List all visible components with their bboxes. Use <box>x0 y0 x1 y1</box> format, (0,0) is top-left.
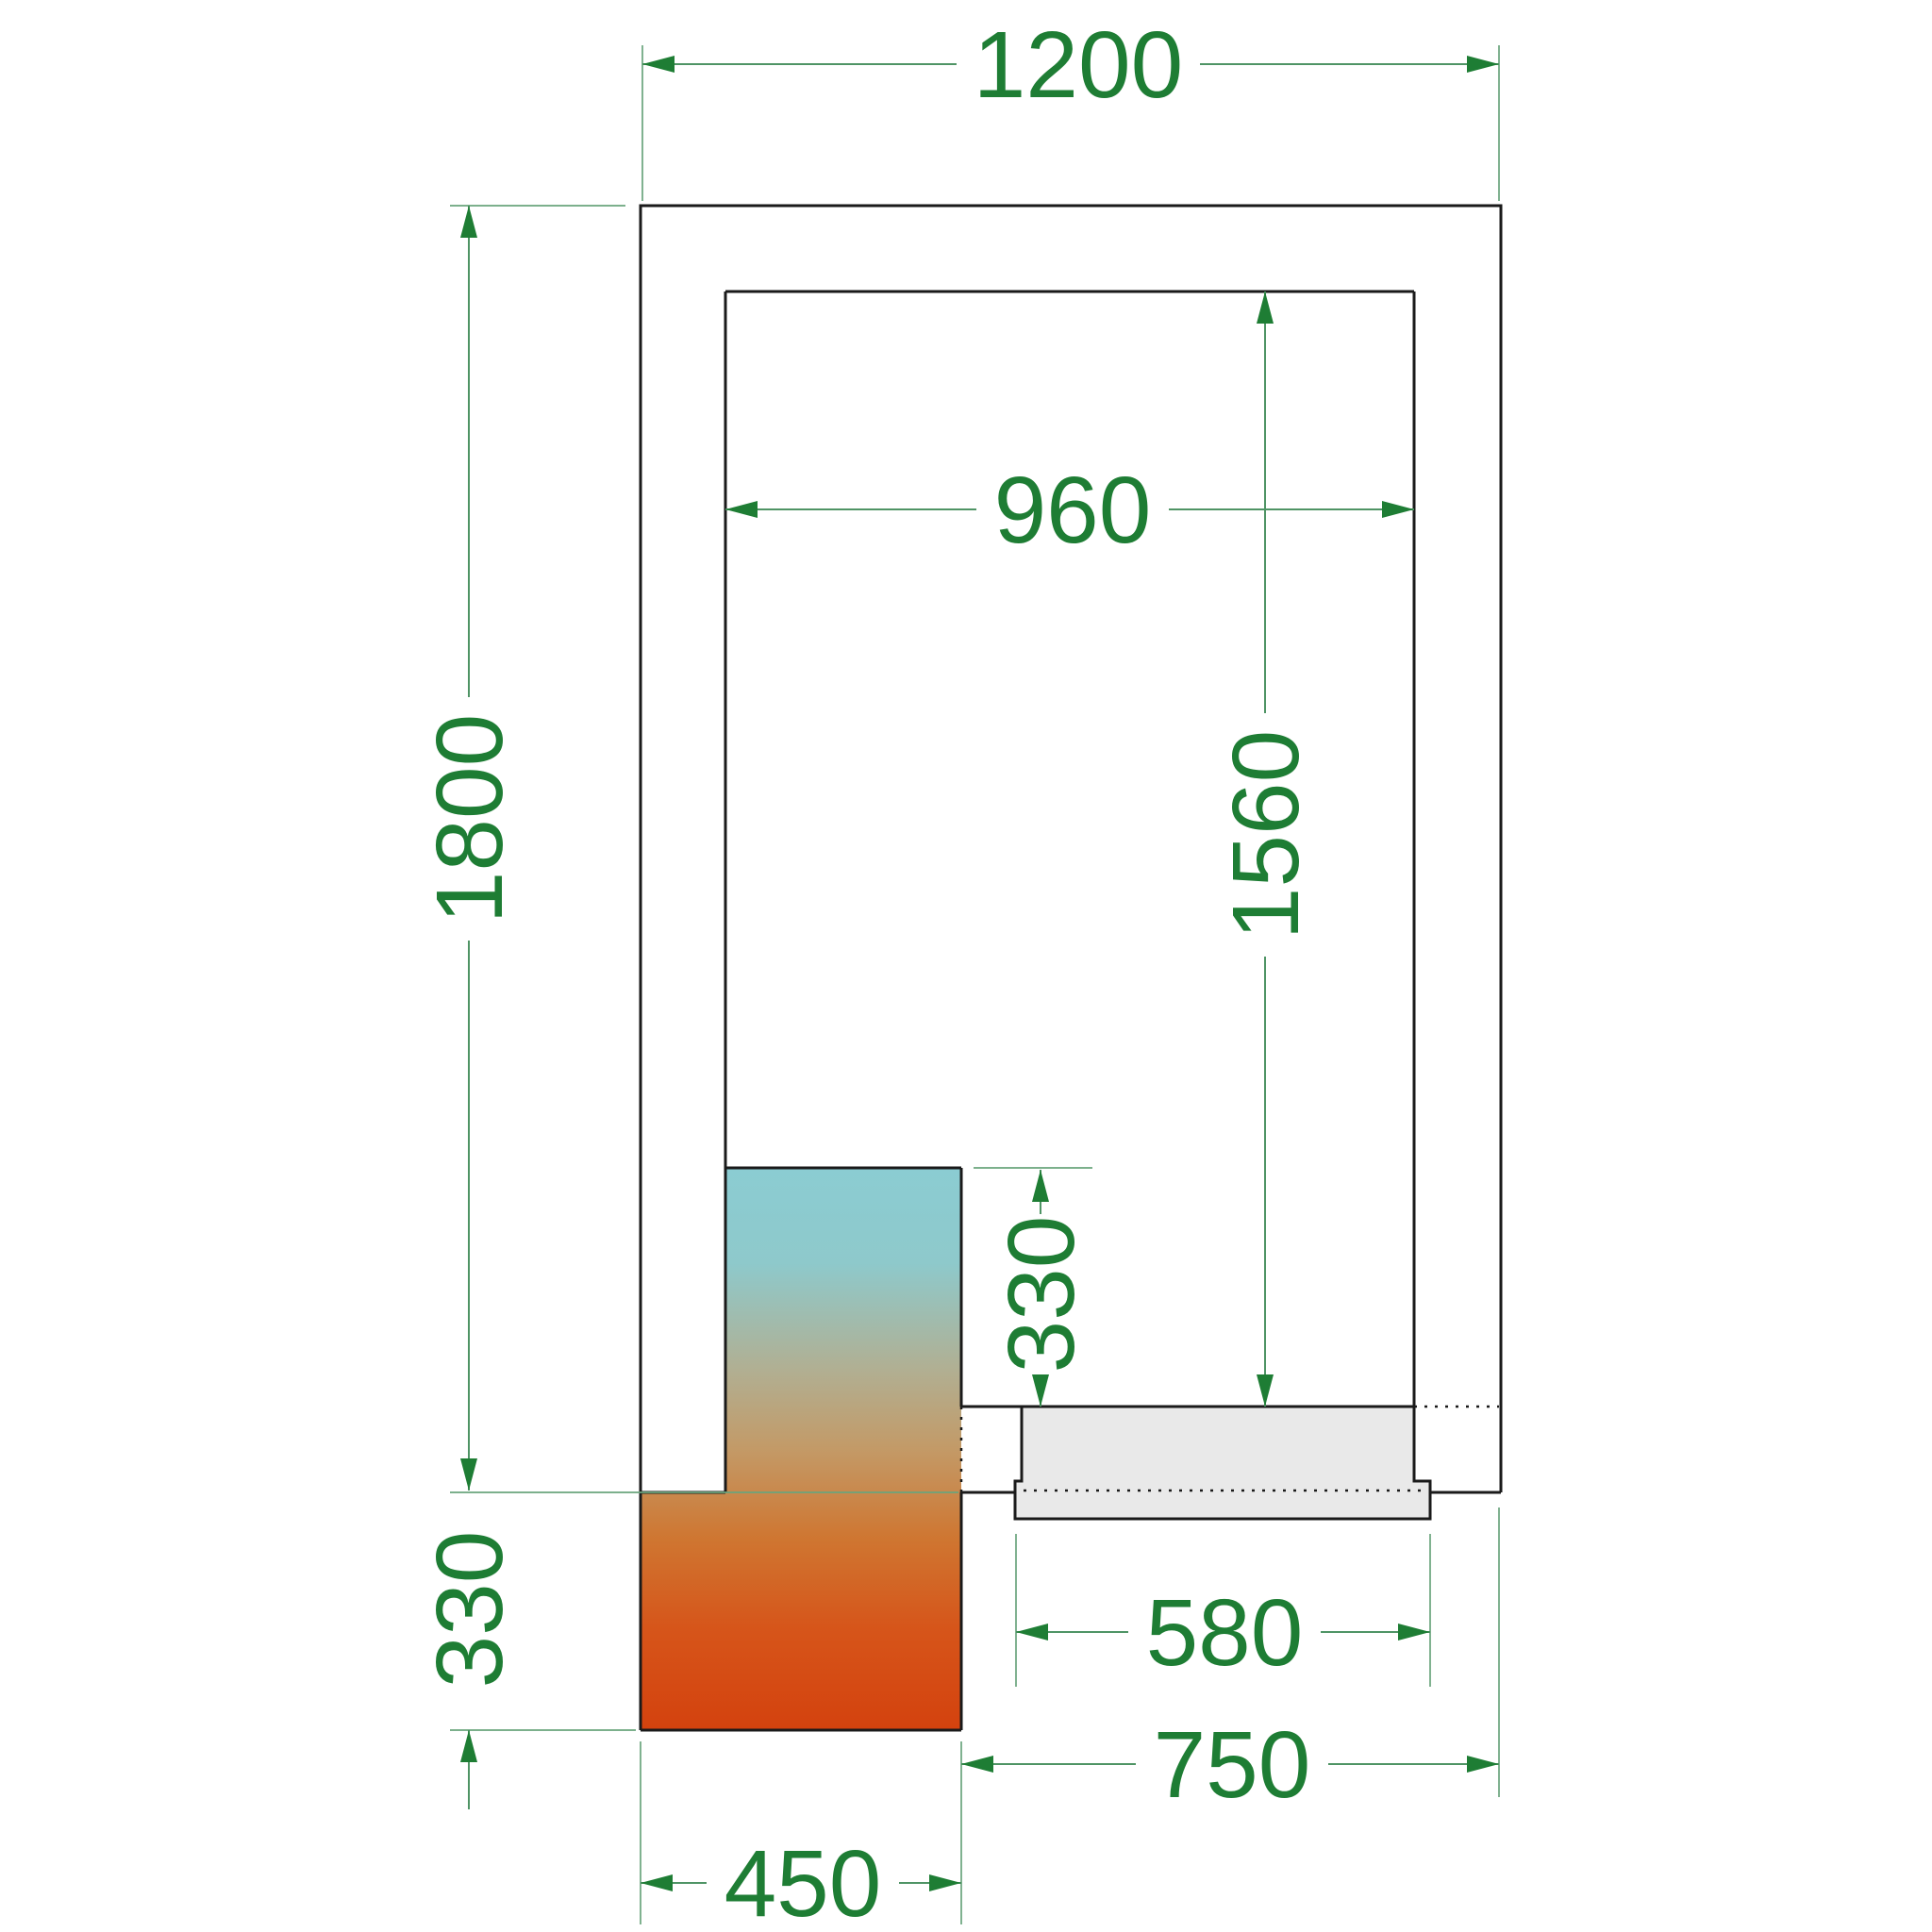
dimension-label-1200: 1200 <box>974 12 1183 118</box>
dimension-label-580: 580 <box>1146 1580 1304 1686</box>
dimension-label-330-right: 330 <box>989 1216 1094 1374</box>
dimension-label-750: 750 <box>1154 1712 1311 1818</box>
dimension-label-450: 450 <box>724 1831 882 1932</box>
dimension-label-1560: 1560 <box>1213 730 1319 940</box>
drawing-canvas: 1200 960 1800 1560 330 330 <box>0 0 1932 1932</box>
sliding-door <box>1015 1407 1430 1519</box>
dimension-label-960: 960 <box>994 458 1152 563</box>
dimension-label-330-left: 330 <box>417 1531 523 1689</box>
background <box>0 0 1932 1932</box>
floor-plan-drawing: 1200 960 1800 1560 330 330 <box>0 0 1932 1932</box>
door-panel <box>1015 1407 1430 1519</box>
dimension-label-1800: 1800 <box>417 714 523 924</box>
